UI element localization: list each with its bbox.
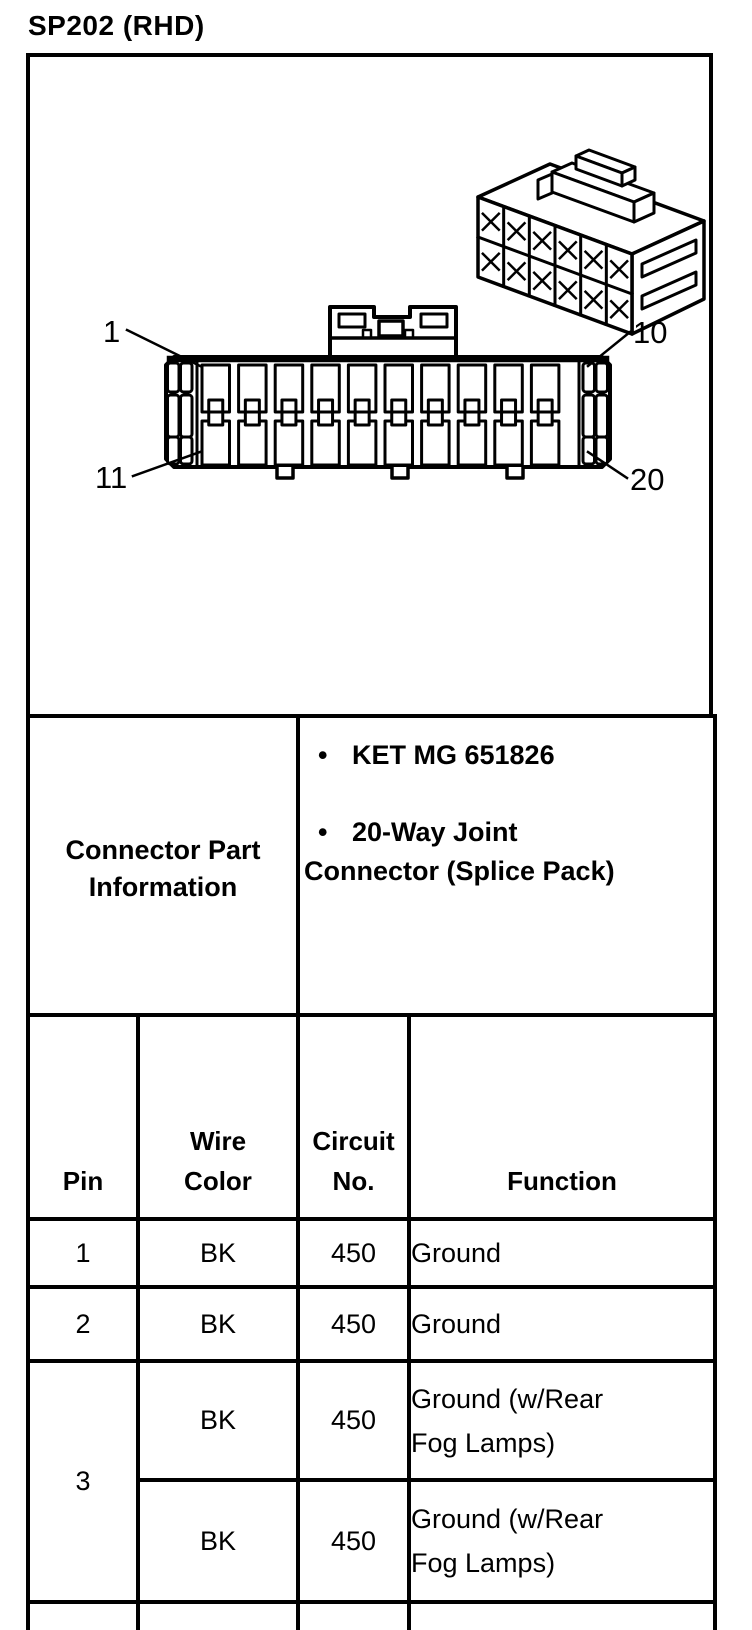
manual-page: { "title": "SP202 (RHD)", "colors": { "i… xyxy=(0,0,752,1614)
connector-spec-table: Connector Part Information •KET MG 65182… xyxy=(26,714,717,1630)
table-row: 1 BK 450 Ground xyxy=(28,1219,715,1287)
cell-function: Ground (w/Rear Fog Lamps) xyxy=(409,1361,715,1480)
part-info-details-cell: •KET MG 651826 •20-Way Joint Connector (… xyxy=(298,716,715,1015)
connector-3d-illustration xyxy=(478,150,704,334)
header-pin: Pin xyxy=(28,1015,138,1219)
cell-wire: BK xyxy=(138,1219,298,1287)
pin-label-bottom-right: 20 xyxy=(630,462,664,497)
table-row: 2 BK 450 Ground xyxy=(28,1287,715,1361)
part-info-item: •KET MG 651826 xyxy=(304,740,707,771)
cell-circuit: 450 xyxy=(298,1361,409,1480)
cell-pin: 3 xyxy=(28,1361,138,1602)
cell-wire: BK xyxy=(138,1361,298,1480)
cell-function: Ground (w/Rear Fog Lamps) xyxy=(409,1480,715,1602)
part-info-row: Connector Part Information •KET MG 65182… xyxy=(28,716,715,1015)
pin-label-top-right: 10 xyxy=(633,315,667,350)
cell-circuit: 450 xyxy=(298,1480,409,1602)
connector-diagram: 1 10 11 20 xyxy=(30,57,709,714)
table-row-cutoff xyxy=(28,1602,715,1630)
cell-function: Ground xyxy=(409,1287,715,1361)
cell-pin: 1 xyxy=(28,1219,138,1287)
table-header-row: Pin Wire Color Circuit No. Function xyxy=(28,1015,715,1219)
part-info-title-cell: Connector Part Information xyxy=(28,716,298,1015)
connector-front-illustration: 1 10 11 20 xyxy=(95,307,667,497)
pin-label-top-left: 1 xyxy=(103,314,120,349)
cell-wire xyxy=(138,1602,298,1630)
table-row: 3 BK 450 Ground (w/Rear Fog Lamps) xyxy=(28,1361,715,1480)
pin-label-bottom-left: 11 xyxy=(95,460,127,495)
cell-pin: 2 xyxy=(28,1287,138,1361)
part-info-item-wrap: Connector (Splice Pack) xyxy=(304,856,707,887)
cell-circuit xyxy=(298,1602,409,1630)
cell-circuit: 450 xyxy=(298,1287,409,1361)
connector-figure-box: 1 10 11 20 xyxy=(26,53,713,714)
cell-wire: BK xyxy=(138,1480,298,1602)
part-info-item: •20-Way Joint xyxy=(304,817,707,848)
leader-line-pin1 xyxy=(127,330,200,366)
bullet-icon: • xyxy=(304,740,352,771)
part-info-title: Connector Part Information xyxy=(53,832,273,906)
page-title: SP202 (RHD) xyxy=(28,10,205,42)
header-circuit-no: Circuit No. xyxy=(298,1015,409,1219)
cell-function: Ground xyxy=(409,1219,715,1287)
cell-pin xyxy=(28,1602,138,1630)
header-function: Function xyxy=(409,1015,715,1219)
cell-circuit: 450 xyxy=(298,1219,409,1287)
cell-wire: BK xyxy=(138,1287,298,1361)
bullet-icon: • xyxy=(304,817,352,848)
header-wire-color: Wire Color xyxy=(138,1015,298,1219)
cell-function xyxy=(409,1602,715,1630)
page-content: 1 10 11 20 Connector Part Information •K… xyxy=(26,53,713,1630)
